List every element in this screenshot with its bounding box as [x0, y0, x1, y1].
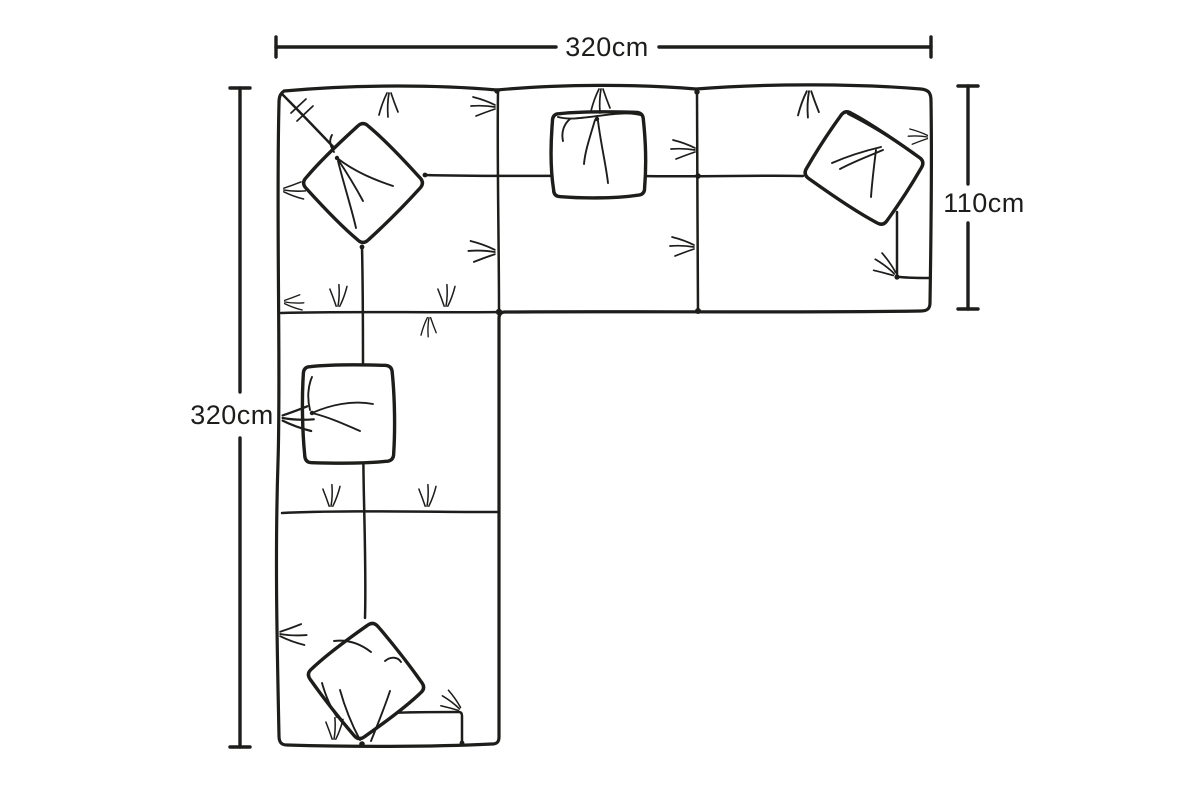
junction-dot	[894, 274, 899, 279]
tuft-mark	[421, 318, 436, 337]
right-depth-dimension: 110cm	[943, 86, 1025, 309]
tuft-mark	[419, 485, 436, 507]
tuft-mark	[670, 237, 694, 256]
junction-dot	[494, 88, 499, 93]
tuft-mark	[468, 241, 494, 262]
bottom-arm-seam	[390, 712, 462, 743]
seam-horizontal-2	[282, 511, 498, 513]
tuft-mark	[285, 295, 304, 310]
corner-cushion	[299, 119, 426, 246]
seam-vertical-2	[697, 92, 698, 311]
tuft-mark	[280, 624, 306, 645]
bottom-end-cushion	[304, 619, 427, 742]
junction-dot	[359, 741, 365, 747]
junction-dot	[695, 308, 701, 314]
tuft-knot	[335, 156, 339, 160]
tuft-mark	[330, 285, 347, 307]
cushions	[299, 108, 927, 743]
left-height-label: 320cm	[190, 400, 274, 430]
bottom-end-cushion-outline	[304, 619, 427, 742]
corner-sofa-top-view-diagram: 320cm 320cm 110cm	[0, 0, 1200, 800]
tuft-knot	[595, 117, 599, 121]
junction-dot	[360, 245, 365, 250]
junction-dot	[695, 173, 701, 179]
tuft-mark	[379, 93, 398, 117]
left-height-dimension: 320cm	[190, 88, 274, 747]
right-end-cushion-outline	[801, 108, 927, 228]
junction-dot	[496, 309, 502, 315]
seam-horizontal-1	[281, 312, 499, 313]
tuft-mark	[471, 97, 495, 116]
tuft-mark	[438, 285, 455, 307]
right-depth-label: 110cm	[943, 188, 1025, 218]
top-width-label: 320cm	[565, 32, 649, 62]
junction-dot	[423, 173, 428, 178]
right-arm-seam	[897, 212, 929, 278]
top-width-dimension: 320cm	[276, 32, 931, 62]
right-end-cushion	[801, 108, 927, 228]
tuft-knot	[310, 411, 314, 415]
tuft-mark	[798, 91, 819, 117]
junction-dot	[694, 89, 699, 94]
tuft-mark	[591, 89, 610, 113]
diagram-canvas: 320cm 320cm 110cm	[0, 0, 1200, 800]
tuft-mark	[908, 129, 927, 144]
tuft-mark	[671, 140, 695, 159]
tuft-mark	[323, 485, 340, 507]
junction-dot	[460, 741, 465, 746]
corner-cushion-outline	[299, 119, 426, 246]
seam-vertical-1	[498, 91, 499, 312]
